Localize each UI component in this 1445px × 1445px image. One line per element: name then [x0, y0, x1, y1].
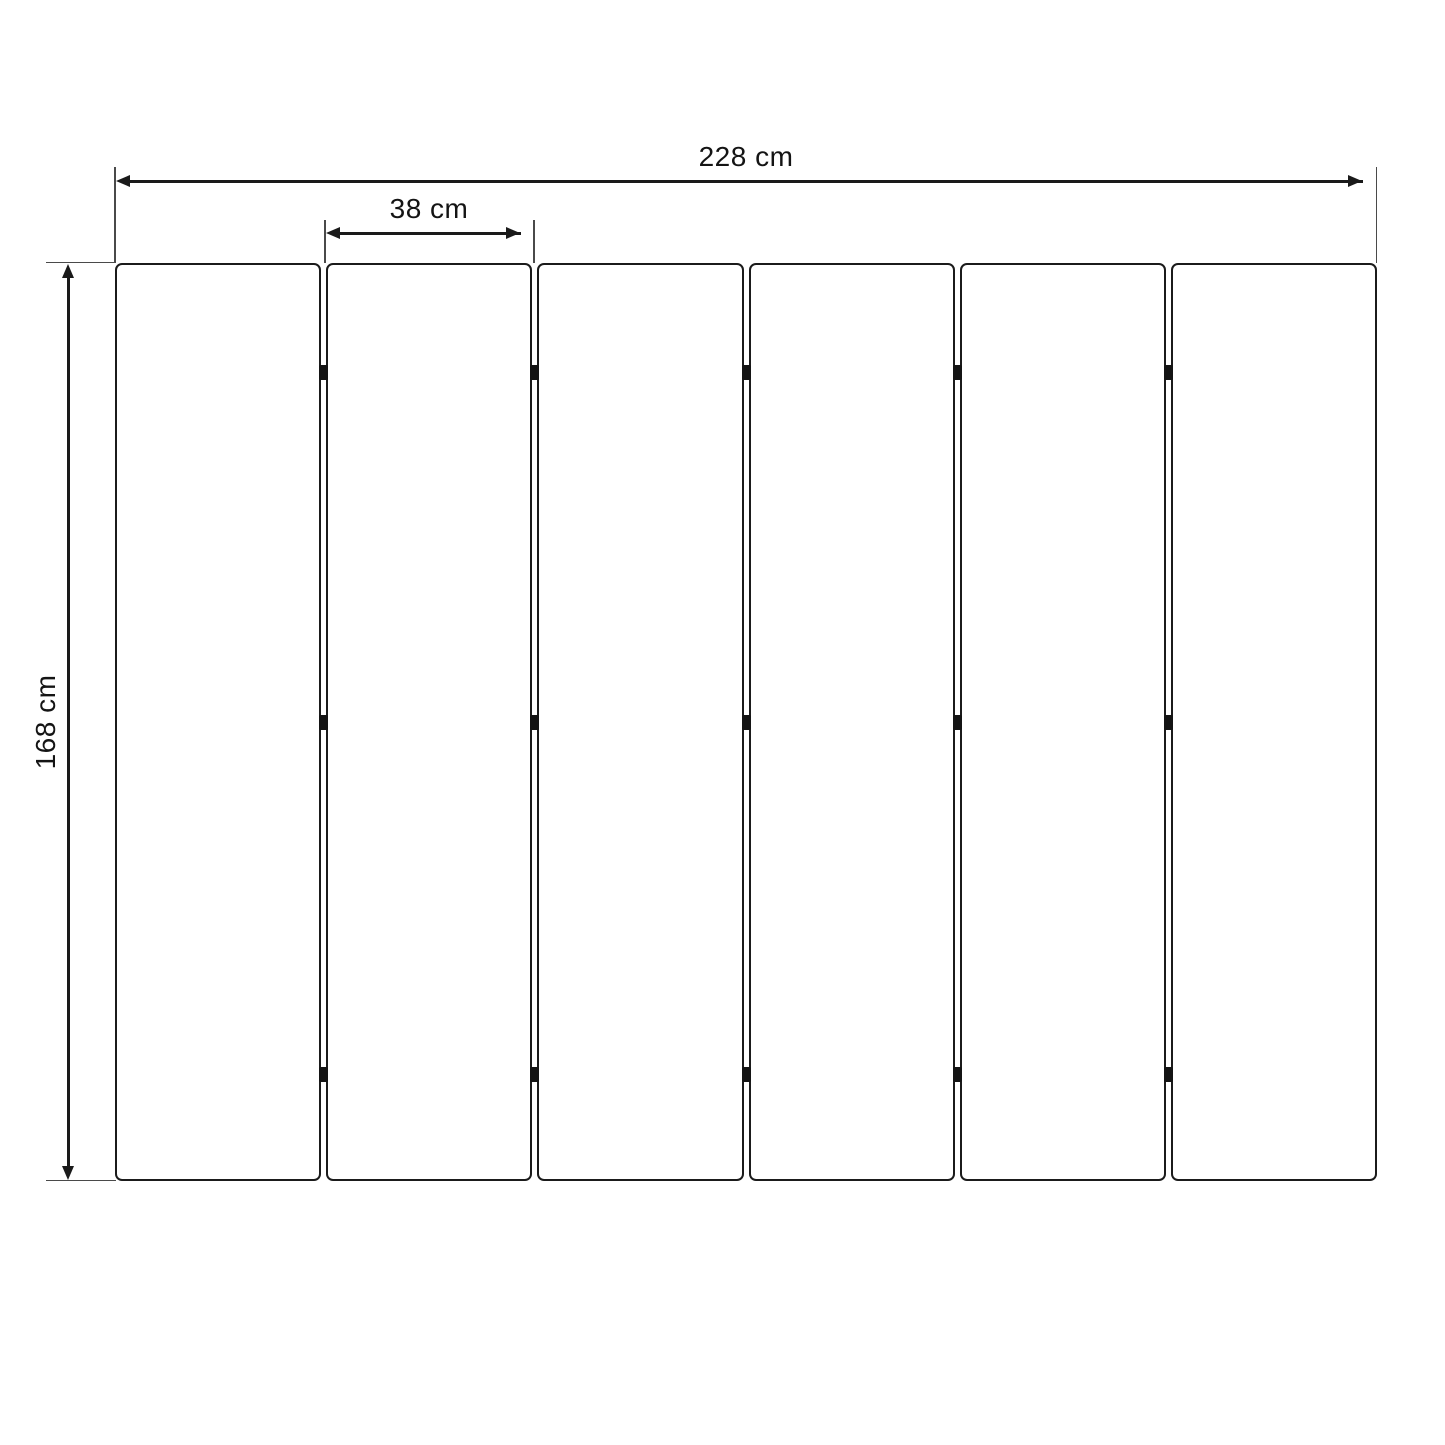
- hinge-connector: [1164, 715, 1173, 730]
- screen-panel: [960, 263, 1166, 1181]
- hinge-connector: [530, 1067, 539, 1082]
- extension-line-right: [533, 220, 535, 263]
- hinge-connector: [319, 1067, 328, 1082]
- arrow-right-icon: [1348, 175, 1362, 187]
- hinge-connector: [1164, 365, 1173, 380]
- hinge-connector: [1164, 1067, 1173, 1082]
- total-width-dimension-line: [129, 180, 1363, 183]
- arrow-left-icon: [116, 175, 130, 187]
- extension-line-left: [114, 167, 116, 263]
- extension-line-bottom: [46, 1180, 116, 1182]
- hinge-connector: [953, 1067, 962, 1082]
- extension-line-left: [324, 220, 326, 263]
- height-label: 168 cm: [30, 675, 62, 770]
- screen-panel: [1171, 263, 1377, 1181]
- hinge-connector: [742, 715, 751, 730]
- hinge-connector: [953, 715, 962, 730]
- hinge-connector: [530, 715, 539, 730]
- arrow-right-icon: [506, 227, 520, 239]
- arrow-down-icon: [62, 1166, 74, 1180]
- extension-line-right: [1376, 167, 1378, 263]
- screen-panel: [537, 263, 743, 1181]
- panel-row: [115, 263, 1377, 1181]
- hinge-connector: [742, 365, 751, 380]
- extension-line-top: [46, 262, 116, 264]
- screen-panel: [115, 263, 321, 1181]
- screen-panel: [326, 263, 532, 1181]
- arrow-left-icon: [326, 227, 340, 239]
- total-width-label: 228 cm: [699, 141, 794, 173]
- panel-width-label: 38 cm: [390, 193, 469, 225]
- dimension-diagram: 228 cm 38 cm 168 cm: [0, 0, 1445, 1445]
- height-dimension-line: [67, 277, 70, 1167]
- screen-panel: [749, 263, 955, 1181]
- panel-width-dimension-line: [339, 232, 521, 235]
- hinge-connector: [953, 365, 962, 380]
- hinge-connector: [319, 365, 328, 380]
- hinge-connector: [742, 1067, 751, 1082]
- hinge-connector: [319, 715, 328, 730]
- hinge-connector: [530, 365, 539, 380]
- arrow-up-icon: [62, 264, 74, 278]
